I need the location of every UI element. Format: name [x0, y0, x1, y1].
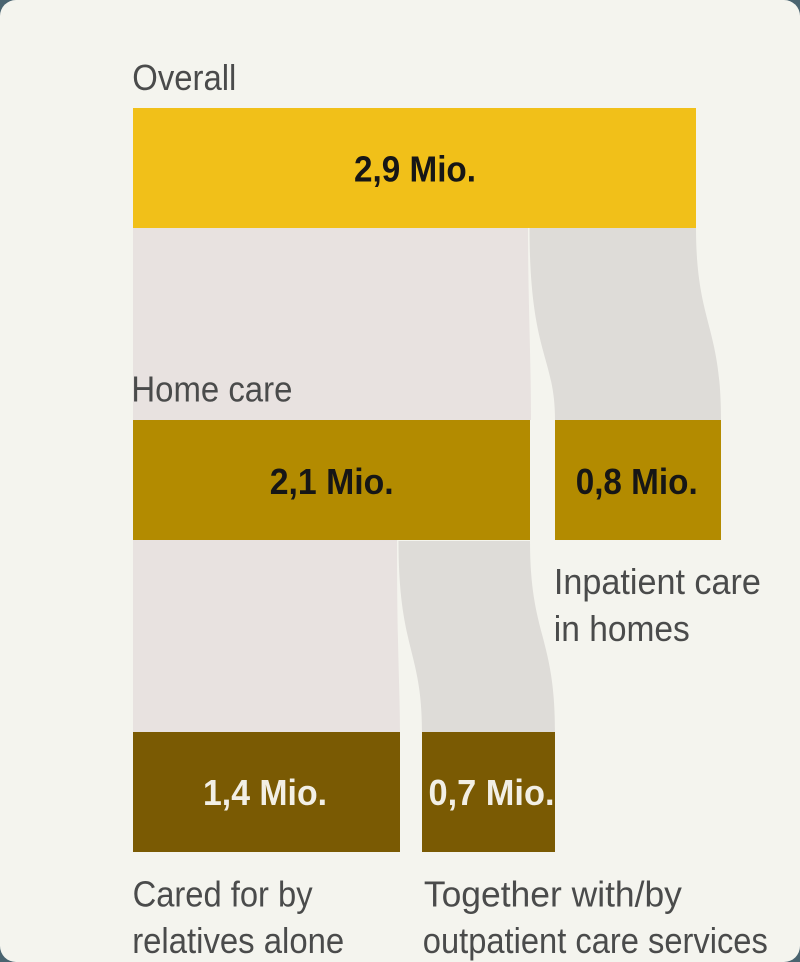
svg-text:Overall: Overall	[132, 57, 236, 98]
svg-text:outpatient care services: outpatient care services	[423, 920, 768, 961]
svg-text:Cared for by: Cared for by	[133, 873, 313, 914]
svg-text:1,4 Mio.: 1,4 Mio.	[203, 772, 327, 813]
svg-text:2,1 Mio.: 2,1 Mio.	[270, 461, 394, 502]
svg-text:Together with/by: Together with/by	[424, 873, 682, 914]
svg-text:Inpatient care: Inpatient care	[554, 561, 761, 602]
svg-text:0,8 Mio.: 0,8 Mio.	[576, 461, 698, 502]
svg-text:in homes: in homes	[554, 608, 690, 649]
svg-text:2,9 Mio.: 2,9 Mio.	[354, 148, 476, 189]
svg-text:relatives alone: relatives alone	[132, 920, 344, 961]
svg-text:Home care: Home care	[131, 368, 292, 409]
svg-text:0,7 Mio.: 0,7 Mio.	[429, 772, 555, 813]
